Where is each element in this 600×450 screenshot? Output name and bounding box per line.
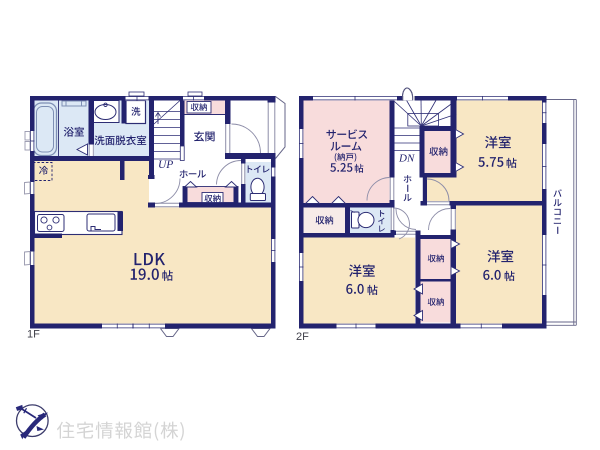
svg-text:2F: 2F — [296, 331, 309, 343]
svg-text:1F: 1F — [27, 329, 40, 341]
svg-text:DN: DN — [398, 153, 415, 165]
svg-text:UP: UP — [158, 159, 173, 171]
